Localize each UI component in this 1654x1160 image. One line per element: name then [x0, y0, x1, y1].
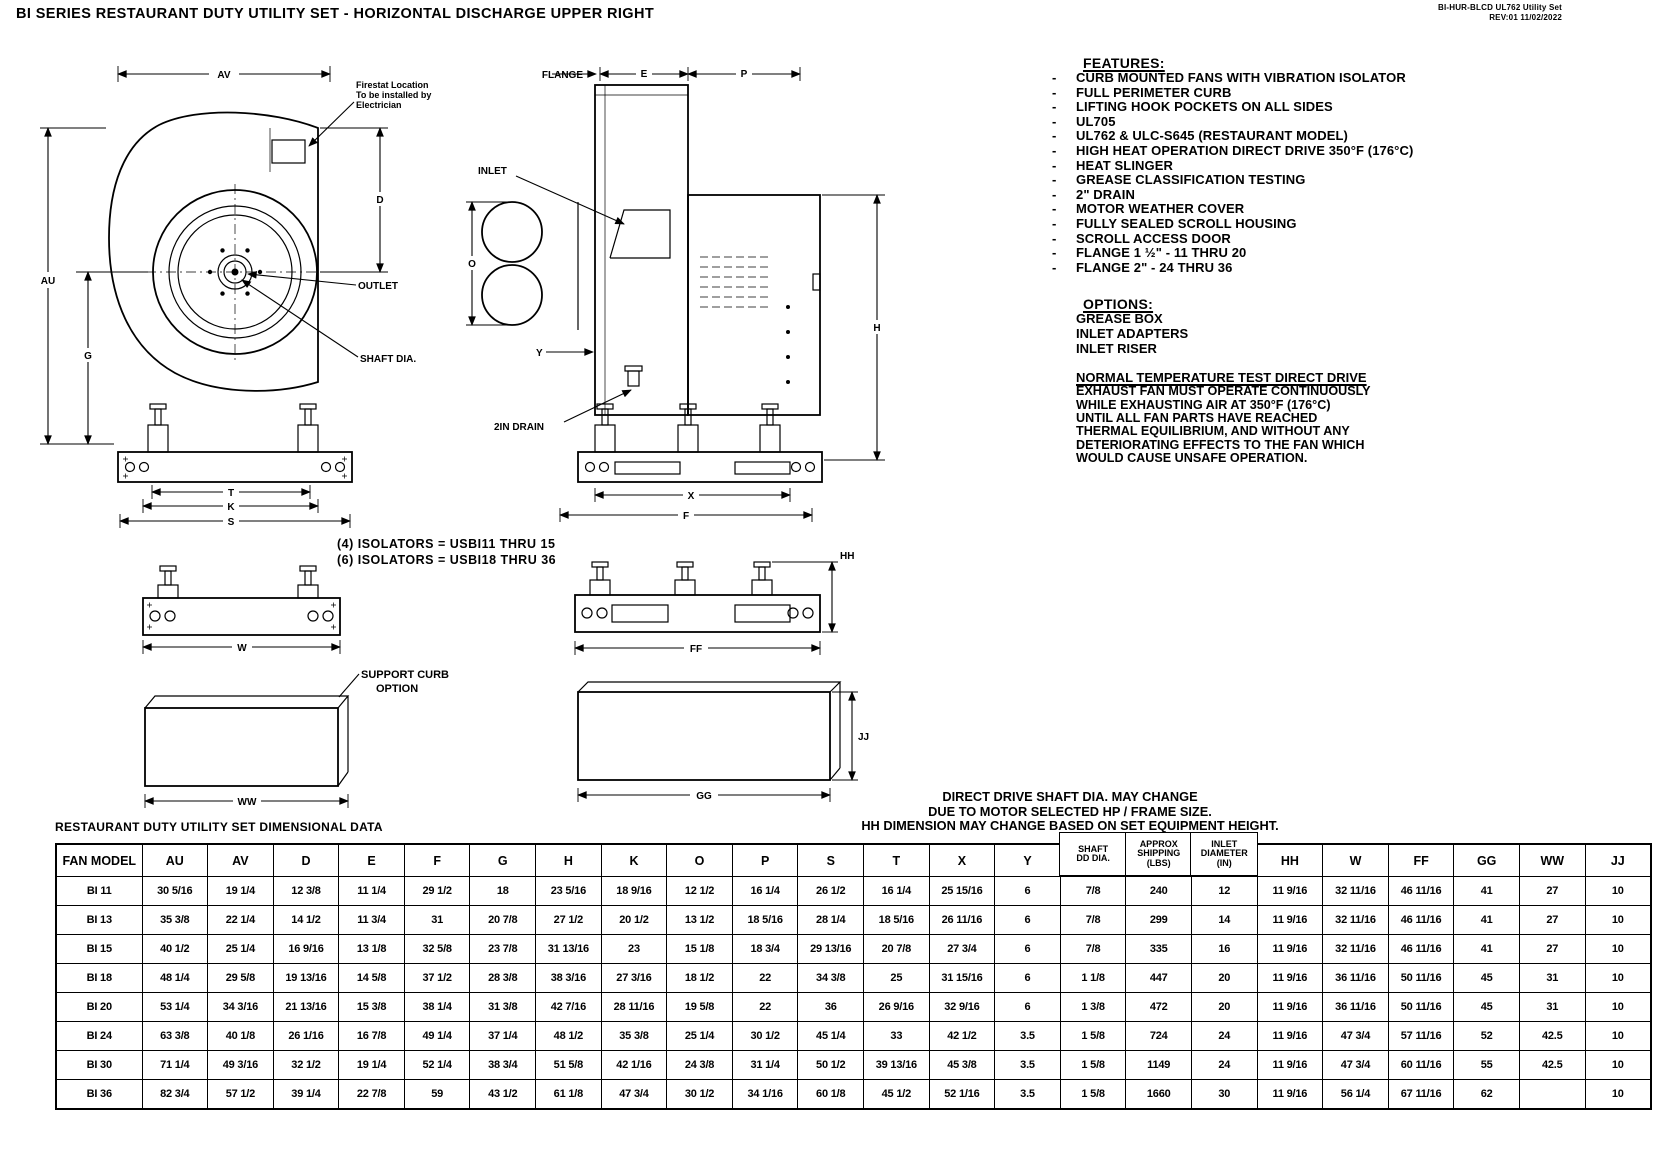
dim-cell: 11 9/16 — [1257, 1080, 1323, 1110]
dim-label-h: H — [873, 323, 880, 334]
dim-cell: 20 — [1192, 964, 1258, 993]
normal-test-line: DETERIORATING EFFECTS TO THE FAN WHICH — [1045, 439, 1545, 452]
base-rail — [575, 595, 820, 632]
feature-item: -FLANGE 2" - 24 THRU 36 — [1045, 261, 1545, 276]
dim-cell: 27 — [1519, 906, 1585, 935]
dim-cell: 45 1/4 — [798, 1022, 864, 1051]
dim-cell: 16 7/8 — [339, 1022, 405, 1051]
dim-cell: 42 1/2 — [929, 1022, 995, 1051]
dim-label-au: AU — [41, 276, 55, 287]
dim-cell: 55 — [1454, 1051, 1520, 1080]
support-curb-label-line2: OPTION — [376, 683, 418, 695]
option-item: GREASE BOX — [1045, 312, 1545, 327]
dim-label-hh: HH — [840, 551, 854, 562]
item-text: SCROLL ACCESS DOOR — [1076, 232, 1545, 247]
item-text: CURB MOUNTED FANS WITH VIBRATION ISOLATO… — [1076, 71, 1545, 86]
feature-item: -HIGH HEAT OPERATION DIRECT DRIVE 350°F … — [1045, 144, 1545, 159]
leader-line — [242, 280, 358, 357]
dim-cell: 30 5/16 — [142, 877, 208, 906]
curb-box — [145, 696, 348, 786]
dim-cell: 30 1/2 — [667, 1080, 733, 1110]
column-header-text: INLET DIAMETER (IN) — [1190, 832, 1258, 876]
bullet: - — [1045, 144, 1076, 159]
feature-item: -UL762 & ULC-S645 (RESTAURANT MODEL) — [1045, 129, 1545, 144]
column-header: W — [1323, 844, 1389, 877]
vibration-isolators — [158, 566, 318, 598]
base-rail — [143, 598, 340, 635]
inlet-bell — [482, 202, 578, 330]
feature-item: -MOTOR WEATHER COVER — [1045, 202, 1545, 217]
options-heading: OPTIONS: — [1083, 296, 1153, 312]
motor-compartment — [688, 195, 820, 415]
column-header: O — [667, 844, 733, 877]
dim-gg: GG — [578, 788, 830, 802]
support-curb-small-drawing: SUPPORT CURB OPTION WW — [128, 652, 478, 812]
dim-cell: 28 1/4 — [798, 906, 864, 935]
dim-cell: 31 — [1519, 964, 1585, 993]
outlet-callout: OUTLET — [248, 274, 398, 292]
column-header: AV — [208, 844, 274, 877]
shaft-note-line: DIRECT DRIVE SHAFT DIA. MAY CHANGE — [858, 790, 1282, 805]
dim-cell: 240 — [1126, 877, 1192, 906]
dim-cell: 53 1/4 — [142, 993, 208, 1022]
curb-box — [578, 682, 840, 780]
vibration-isolators — [148, 404, 318, 452]
dim-cell: 28 11/16 — [601, 993, 667, 1022]
dim-cell: 46 11/16 — [1388, 935, 1454, 964]
leader-line — [309, 102, 354, 146]
dim-cell: 61 1/8 — [536, 1080, 602, 1110]
page-title: BI SERIES RESTAURANT DUTY UTILITY SET - … — [16, 6, 654, 22]
dim-cell: 12 3/8 — [273, 877, 339, 906]
dim-f: F — [560, 508, 812, 522]
dim-cell: 31 15/16 — [929, 964, 995, 993]
doc-info-line2: REV:01 11/02/2022 — [1300, 13, 1562, 23]
dim-cell: 10 — [1585, 964, 1651, 993]
feature-item: -FLANGE 1 ½" - 11 THRU 20 — [1045, 246, 1545, 261]
dim-ww: WW — [145, 794, 348, 808]
dimensional-data-table: FAN MODELAUAVDEFGHKOPSTXYSHAFT DD DIA.AP… — [55, 843, 1652, 1110]
dim-cell: 34 1/16 — [732, 1080, 798, 1110]
door-handle — [813, 274, 820, 290]
dim-label-jj: JJ — [858, 732, 869, 743]
dim-label-k: K — [227, 502, 235, 513]
dim-cell: 36 11/16 — [1323, 993, 1389, 1022]
dim-cell — [1519, 1080, 1585, 1110]
doc-info-line1: BI-HUR-BLCD UL762 Utility Set — [1300, 3, 1562, 13]
column-header: Y — [995, 844, 1061, 877]
dim-cell: 447 — [1126, 964, 1192, 993]
fan-side-view-drawing: AV Firestat Location To be installed by … — [26, 52, 466, 532]
normal-test-line: WOULD CAUSE UNSAFE OPERATION. — [1045, 452, 1545, 465]
dim-cell: 32 9/16 — [929, 993, 995, 1022]
dim-label-y: Y — [536, 348, 543, 359]
dim-cell: 21 13/16 — [273, 993, 339, 1022]
dim-cell: 37 1/4 — [470, 1022, 536, 1051]
dim-cell: 11 9/16 — [1257, 964, 1323, 993]
column-header: FF — [1388, 844, 1454, 877]
dim-cell: 46 11/16 — [1388, 906, 1454, 935]
features-panel: FEATURES: -CURB MOUNTED FANS WITH VIBRAT… — [1045, 55, 1545, 466]
dim-cell: 22 — [732, 993, 798, 1022]
dim-cell: 11 9/16 — [1257, 877, 1323, 906]
dim-y: Y — [536, 348, 593, 359]
dim-cell: 11 3/4 — [339, 906, 405, 935]
doc-info: BI-HUR-BLCD UL762 Utility Set REV:01 11/… — [1300, 3, 1562, 22]
dim-cell: 49 1/4 — [404, 1022, 470, 1051]
dim-cell: 1 5/8 — [1060, 1022, 1126, 1051]
bullet: - — [1045, 71, 1076, 86]
bullet: - — [1045, 86, 1076, 101]
dim-cell: 27 1/2 — [536, 906, 602, 935]
bullet: - — [1045, 129, 1076, 144]
dim-cell: 6 — [995, 935, 1061, 964]
item-text: HEAT SLINGER — [1076, 159, 1545, 174]
dim-cell: 25 15/16 — [929, 877, 995, 906]
dim-cell: 60 1/8 — [798, 1080, 864, 1110]
dim-cell: 36 11/16 — [1323, 964, 1389, 993]
scroll-housing — [109, 113, 324, 391]
dim-s: S — [120, 514, 350, 528]
support-curb-large-drawing: JJ GG — [558, 652, 878, 812]
dim-cell: 10 — [1585, 1080, 1651, 1110]
dim-cell: 16 — [1192, 935, 1258, 964]
dim-cell: 45 — [1454, 993, 1520, 1022]
dim-cell: 18 5/16 — [864, 906, 930, 935]
dim-cell: 20 1/2 — [601, 906, 667, 935]
dim-cell: 10 — [1585, 993, 1651, 1022]
dim-g: G — [76, 272, 148, 444]
dim-cell: 22 — [732, 964, 798, 993]
bullet: - — [1045, 159, 1076, 174]
outlet-label: OUTLET — [358, 281, 398, 292]
dim-cell: 3.5 — [995, 1022, 1061, 1051]
table-row: BI 2053 1/434 3/1621 13/1615 3/838 1/431… — [56, 993, 1651, 1022]
dim-cell: 41 — [1454, 906, 1520, 935]
bullet: - — [1045, 188, 1076, 203]
dim-cell: 38 3/16 — [536, 964, 602, 993]
dim-cell: 29 5/8 — [208, 964, 274, 993]
fan-model-cell: BI 30 — [56, 1051, 142, 1080]
dim-cell: 18 1/2 — [667, 964, 733, 993]
fan-model-cell: BI 13 — [56, 906, 142, 935]
dim-cell: 12 — [1192, 877, 1258, 906]
item-text: FULLY SEALED SCROLL HOUSING — [1076, 217, 1545, 232]
dim-cell: 23 7/8 — [470, 935, 536, 964]
dim-cell: 45 — [1454, 964, 1520, 993]
dim-cell: 42 7/16 — [536, 993, 602, 1022]
fan-model-cell: BI 20 — [56, 993, 142, 1022]
bullet: - — [1045, 217, 1076, 232]
dim-cell: 11 9/16 — [1257, 993, 1323, 1022]
dim-label-g: G — [84, 351, 92, 362]
dim-cell: 20 7/8 — [470, 906, 536, 935]
dim-cell: 39 13/16 — [864, 1051, 930, 1080]
dim-cell: 45 1/2 — [864, 1080, 930, 1110]
dim-cell: 60 11/16 — [1388, 1051, 1454, 1080]
dim-cell: 33 — [864, 1022, 930, 1051]
drain-label: 2IN DRAIN — [494, 422, 544, 433]
dim-cell: 32 1/2 — [273, 1051, 339, 1080]
normal-test-heading: NORMAL TEMPERATURE TEST DIRECT DRIVE — [1076, 370, 1545, 385]
dim-cell: 34 3/8 — [798, 964, 864, 993]
dim-cell: 1 1/8 — [1060, 964, 1126, 993]
table-title: RESTAURANT DUTY UTILITY SET DIMENSIONAL … — [55, 820, 383, 834]
fan-model-cell: BI 11 — [56, 877, 142, 906]
fan-front-view-drawing: FLANGE E P INLET — [452, 52, 922, 532]
item-text: 2" DRAIN — [1076, 188, 1545, 203]
dim-cell: 18 — [470, 877, 536, 906]
column-header: WW — [1519, 844, 1585, 877]
dim-cell: 31 — [1519, 993, 1585, 1022]
isolation-rail-large-drawing: HH FF — [558, 545, 868, 665]
dim-cell: 23 — [601, 935, 667, 964]
item-text: LIFTING HOOK POCKETS ON ALL SIDES — [1076, 100, 1545, 115]
dim-cell: 1149 — [1126, 1051, 1192, 1080]
column-header: S — [798, 844, 864, 877]
item-text: UL705 — [1076, 115, 1545, 130]
dim-cell: 29 13/16 — [798, 935, 864, 964]
dim-cell: 40 1/2 — [142, 935, 208, 964]
dim-av: AV — [118, 66, 330, 82]
dim-h: H — [822, 195, 885, 460]
dim-cell: 34 3/16 — [208, 993, 274, 1022]
item-text: UL762 & ULC-S645 (RESTAURANT MODEL) — [1076, 129, 1545, 144]
dim-cell: 6 — [995, 993, 1061, 1022]
column-header: JJ — [1585, 844, 1651, 877]
isolator-note-line: (6) ISOLATORS = USBI18 THRU 36 — [337, 553, 556, 569]
bullet: - — [1045, 246, 1076, 261]
item-text: GREASE CLASSIFICATION TESTING — [1076, 173, 1545, 188]
dim-cell: 45 3/8 — [929, 1051, 995, 1080]
column-header-text: SHAFT DD DIA. — [1059, 832, 1127, 876]
dim-cell: 19 5/8 — [667, 993, 733, 1022]
support-curb-callout: SUPPORT CURB OPTION — [339, 669, 449, 697]
leader-line — [516, 176, 624, 224]
dim-cell: 47 3/4 — [1323, 1022, 1389, 1051]
feature-item: -GREASE CLASSIFICATION TESTING — [1045, 173, 1545, 188]
dim-cell: 1660 — [1126, 1080, 1192, 1110]
dim-cell: 62 — [1454, 1080, 1520, 1110]
table-row: BI 1540 1/225 1/416 9/1613 1/832 5/823 7… — [56, 935, 1651, 964]
dim-cell: 52 — [1454, 1022, 1520, 1051]
dim-cell: 32 11/16 — [1323, 906, 1389, 935]
dim-cell: 27 3/16 — [601, 964, 667, 993]
dim-cell: 10 — [1585, 935, 1651, 964]
dim-jj: JJ — [832, 692, 869, 780]
flange-callout: FLANGE — [542, 70, 596, 81]
dim-e: E — [600, 66, 688, 81]
option-item: INLET ADAPTERS — [1045, 327, 1545, 342]
dim-cell: 6 — [995, 877, 1061, 906]
table-row: BI 1848 1/429 5/819 13/1614 5/837 1/228 … — [56, 964, 1651, 993]
dim-cell: 18 9/16 — [601, 877, 667, 906]
item-text: FLANGE 1 ½" - 11 THRU 20 — [1076, 246, 1545, 261]
dim-cell: 3.5 — [995, 1080, 1061, 1110]
dim-cell: 7/8 — [1060, 935, 1126, 964]
dim-cell: 47 3/4 — [1323, 1051, 1389, 1080]
dim-cell: 11 9/16 — [1257, 935, 1323, 964]
column-header: K — [601, 844, 667, 877]
dim-cell: 14 — [1192, 906, 1258, 935]
firestat-label-line2: To be installed by — [356, 90, 431, 100]
dim-cell: 63 3/8 — [142, 1022, 208, 1051]
feature-item: -CURB MOUNTED FANS WITH VIBRATION ISOLAT… — [1045, 71, 1545, 86]
dim-cell: 472 — [1126, 993, 1192, 1022]
column-header: GG — [1454, 844, 1520, 877]
item-text: FULL PERIMETER CURB — [1076, 86, 1545, 101]
dim-cell: 18 3/4 — [732, 935, 798, 964]
column-header: FAN MODEL — [56, 844, 142, 877]
dim-t: T — [152, 485, 310, 499]
firestat-label-line3: Electrician — [356, 100, 402, 110]
dim-cell: 57 11/16 — [1388, 1022, 1454, 1051]
feature-item: -HEAT SLINGER — [1045, 159, 1545, 174]
normal-test-line: UNTIL ALL FAN PARTS HAVE REACHED — [1045, 412, 1545, 425]
dim-label-av: AV — [217, 70, 230, 81]
dim-cell: 42 1/16 — [601, 1051, 667, 1080]
dim-cell: 31 — [404, 906, 470, 935]
dim-cell: 16 1/4 — [864, 877, 930, 906]
dim-cell: 52 1/4 — [404, 1051, 470, 1080]
dim-label-s: S — [228, 517, 235, 528]
dim-cell: 14 1/2 — [273, 906, 339, 935]
dim-cell: 15 1/8 — [667, 935, 733, 964]
leader-line — [248, 274, 356, 285]
bullet: - — [1045, 100, 1076, 115]
dim-cell: 24 3/8 — [667, 1051, 733, 1080]
dim-cell: 50 11/16 — [1388, 964, 1454, 993]
dim-cell: 1 5/8 — [1060, 1051, 1126, 1080]
dim-cell: 71 1/4 — [142, 1051, 208, 1080]
dim-cell: 3.5 — [995, 1051, 1061, 1080]
column-header-text: APPROX SHIPPING (LBS) — [1125, 832, 1193, 876]
dim-cell: 82 3/4 — [142, 1080, 208, 1110]
dim-cell: 7/8 — [1060, 877, 1126, 906]
dim-cell: 32 11/16 — [1323, 935, 1389, 964]
dim-o: O — [464, 202, 508, 325]
dim-cell: 10 — [1585, 906, 1651, 935]
dim-label-d: D — [376, 195, 383, 206]
fan-model-cell: BI 24 — [56, 1022, 142, 1051]
dim-cell: 299 — [1126, 906, 1192, 935]
dim-cell: 22 7/8 — [339, 1080, 405, 1110]
dim-cell: 47 3/4 — [601, 1080, 667, 1110]
item-text: HIGH HEAT OPERATION DIRECT DRIVE 350°F (… — [1076, 144, 1545, 159]
dim-label-f: F — [683, 511, 689, 522]
bullet: - — [1045, 115, 1076, 130]
dim-cell: 27 3/4 — [929, 935, 995, 964]
dim-cell: 24 — [1192, 1022, 1258, 1051]
normal-test-line: THERMAL EQUILIBRIUM, AND WITHOUT ANY — [1045, 425, 1545, 438]
options-list: GREASE BOXINLET ADAPTERSINLET RISER — [1045, 312, 1545, 356]
table-row: BI 1335 3/822 1/414 1/211 3/43120 7/827 … — [56, 906, 1651, 935]
fan-model-cell: BI 36 — [56, 1080, 142, 1110]
dim-cell: 35 3/8 — [142, 906, 208, 935]
column-header: APPROX SHIPPING (LBS) — [1126, 844, 1192, 877]
dim-cell: 19 1/4 — [339, 1051, 405, 1080]
inlet-label: INLET — [478, 166, 507, 177]
dim-cell: 32 11/16 — [1323, 877, 1389, 906]
fan-model-cell: BI 18 — [56, 964, 142, 993]
dim-cell: 16 1/4 — [732, 877, 798, 906]
dim-x: X — [595, 488, 790, 502]
dim-cell: 25 1/4 — [667, 1022, 733, 1051]
dim-cell: 6 — [995, 906, 1061, 935]
dim-cell: 48 1/2 — [536, 1022, 602, 1051]
shaft-dia-label: SHAFT DIA. — [360, 354, 416, 365]
bullet: - — [1045, 232, 1076, 247]
dim-cell: 30 — [1192, 1080, 1258, 1110]
dim-cell: 59 — [404, 1080, 470, 1110]
dim-cell: 15 3/8 — [339, 993, 405, 1022]
dim-cell: 50 1/2 — [798, 1051, 864, 1080]
fan-model-cell: BI 15 — [56, 935, 142, 964]
dim-label-e: E — [641, 69, 648, 80]
dim-cell: 42.5 — [1519, 1022, 1585, 1051]
shaft-dia-callout: SHAFT DIA. — [242, 280, 416, 365]
column-header: INLET DIAMETER (IN) — [1192, 844, 1258, 877]
dim-cell: 6 — [995, 964, 1061, 993]
dim-cell: 46 11/16 — [1388, 877, 1454, 906]
base-rail — [118, 452, 352, 482]
feature-item: -2" DRAIN — [1045, 188, 1545, 203]
dim-cell: 13 1/2 — [667, 906, 733, 935]
bullet: - — [1045, 261, 1076, 276]
dim-cell: 11 9/16 — [1257, 1051, 1323, 1080]
drawing-sheet: { "header": { "title": "BI SERIES RESTAU… — [0, 0, 1654, 1160]
dim-p: P — [688, 66, 800, 81]
dim-cell: 22 1/4 — [208, 906, 274, 935]
dim-cell: 25 — [864, 964, 930, 993]
dim-cell: 12 1/2 — [667, 877, 733, 906]
isolator-note-line: (4) ISOLATORS = USBI11 THRU 15 — [337, 537, 556, 553]
feature-item: -LIFTING HOOK POCKETS ON ALL SIDES — [1045, 100, 1545, 115]
features-heading: FEATURES: — [1083, 55, 1165, 71]
table-row: BI 3071 1/449 3/1632 1/219 1/452 1/438 3… — [56, 1051, 1651, 1080]
dim-cell: 26 1/2 — [798, 877, 864, 906]
dim-cell: 26 11/16 — [929, 906, 995, 935]
dim-cell: 30 1/2 — [732, 1022, 798, 1051]
dim-cell: 29 1/2 — [404, 877, 470, 906]
feature-item: -FULL PERIMETER CURB — [1045, 86, 1545, 101]
dim-label-o: O — [468, 259, 476, 270]
dim-cell: 26 1/16 — [273, 1022, 339, 1051]
shaft-dia-note: DIRECT DRIVE SHAFT DIA. MAY CHANGEDUE TO… — [858, 790, 1282, 834]
dim-cell: 11 1/4 — [339, 877, 405, 906]
dim-cell: 67 11/16 — [1388, 1080, 1454, 1110]
bullet: - — [1045, 173, 1076, 188]
table-row: BI 3682 3/457 1/239 1/422 7/85943 1/261 … — [56, 1080, 1651, 1110]
dim-d: D — [320, 128, 388, 272]
column-header: P — [732, 844, 798, 877]
table-row: BI 1130 5/1619 1/412 3/811 1/429 1/21823… — [56, 877, 1651, 906]
dim-cell: 52 1/16 — [929, 1080, 995, 1110]
feature-item: -SCROLL ACCESS DOOR — [1045, 232, 1545, 247]
item-text: MOTOR WEATHER COVER — [1076, 202, 1545, 217]
dim-cell: 39 1/4 — [273, 1080, 339, 1110]
dim-cell: 27 — [1519, 935, 1585, 964]
dim-cell: 32 5/8 — [404, 935, 470, 964]
dim-cell: 18 5/16 — [732, 906, 798, 935]
dim-cell: 31 3/8 — [470, 993, 536, 1022]
dim-cell: 43 1/2 — [470, 1080, 536, 1110]
dim-cell: 50 11/16 — [1388, 993, 1454, 1022]
dim-k: K — [143, 499, 318, 513]
dim-cell: 36 — [798, 993, 864, 1022]
column-header: T — [864, 844, 930, 877]
dim-cell: 23 5/16 — [536, 877, 602, 906]
